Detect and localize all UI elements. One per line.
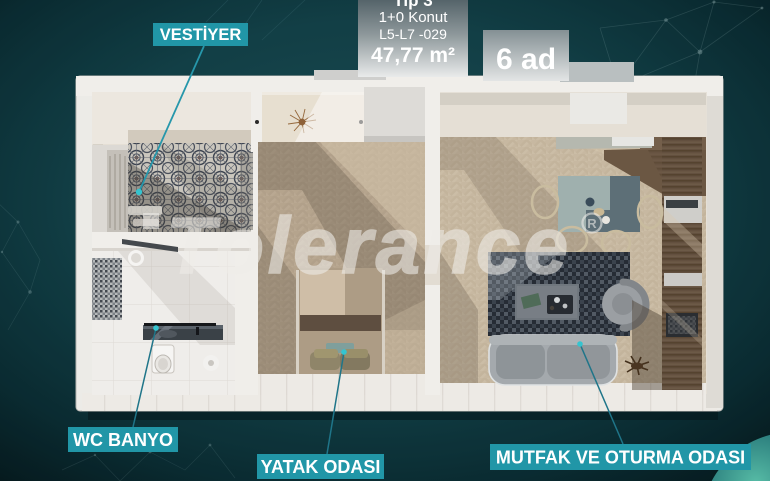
svg-text:1+0 Konut: 1+0 Konut xyxy=(379,9,449,26)
svg-text:MUTFAK VE OTURMA ODASI: MUTFAK VE OTURMA ODASI xyxy=(496,448,745,468)
svg-text:L5-L7 -029: L5-L7 -029 xyxy=(379,26,447,42)
svg-text:VESTİYER: VESTİYER xyxy=(160,26,242,44)
svg-text:WC BANYO: WC BANYO xyxy=(73,430,173,450)
svg-text:6 ad: 6 ad xyxy=(496,43,556,76)
svg-text:Tolerance: Tolerance xyxy=(166,201,572,290)
svg-text:47,77 m²: 47,77 m² xyxy=(371,44,455,67)
svg-text:R: R xyxy=(587,216,597,231)
svg-text:YATAK ODASI: YATAK ODASI xyxy=(261,457,381,477)
